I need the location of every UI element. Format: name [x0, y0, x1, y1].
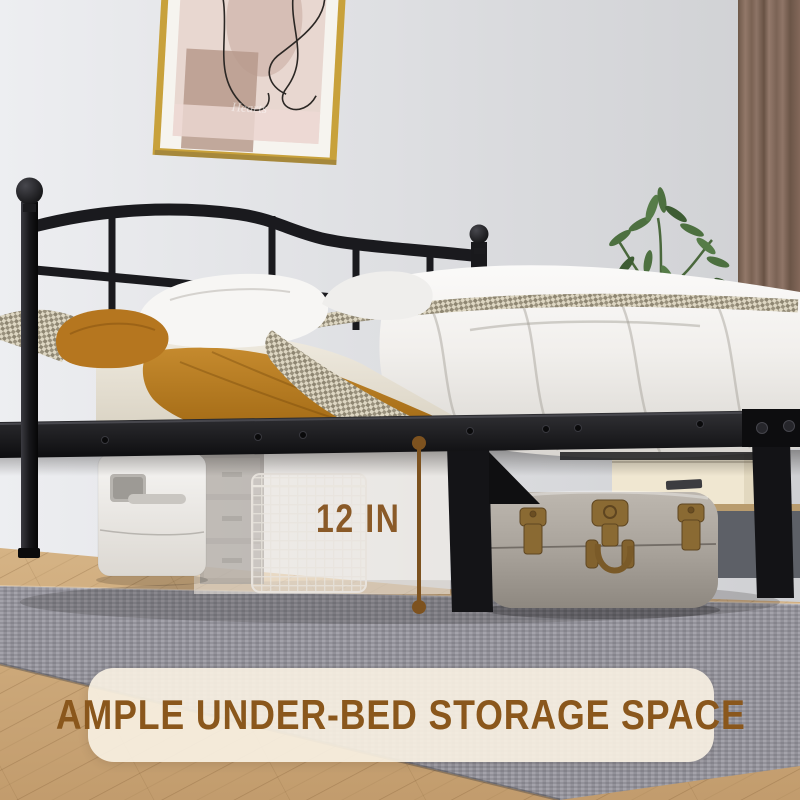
- measurement-label: 12 IN: [316, 497, 400, 542]
- headboard-finial-near: [16, 178, 43, 205]
- artwork-caption: Hearts: [230, 99, 267, 116]
- storage-banner: AMPLE UNDER-BED STORAGE SPACE: [88, 668, 714, 762]
- banner-text: AMPLE UNDER-BED STORAGE SPACE: [56, 691, 746, 739]
- bed-leg-center: [447, 444, 493, 612]
- wall-art-frame: Hearts: [153, 0, 349, 165]
- bed-product-photo: Hearts: [0, 0, 800, 800]
- bed-leg-right: [752, 440, 794, 598]
- storage-trunk: [484, 492, 720, 619]
- measurement-line: [417, 443, 421, 607]
- headboard-finial-far: [470, 225, 489, 244]
- orange-pillow: [56, 309, 169, 368]
